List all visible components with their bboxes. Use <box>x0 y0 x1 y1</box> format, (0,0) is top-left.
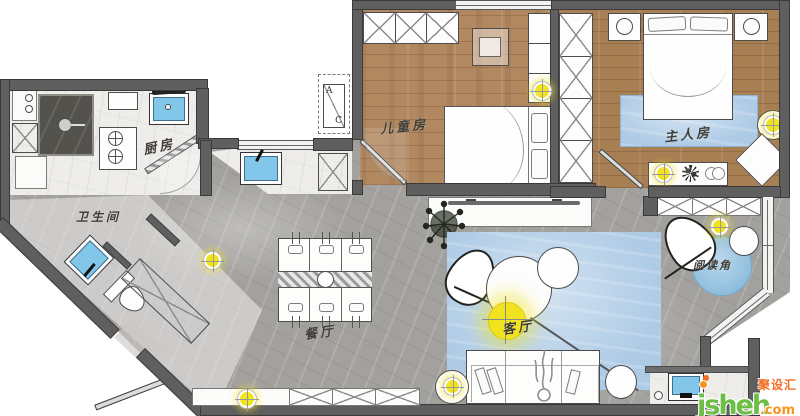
basin-icon <box>25 105 33 113</box>
chair-mark <box>292 316 293 328</box>
chair-mark <box>329 232 330 244</box>
wall <box>550 186 606 198</box>
wall <box>352 0 363 140</box>
chair-mark <box>352 232 353 244</box>
room-label-reading: 阅读角 <box>693 257 732 273</box>
plate-icon <box>288 245 303 254</box>
chair-mark <box>292 232 293 244</box>
lamp-icon <box>616 18 633 35</box>
watermark-logo: 聚设汇 jsheh .com <box>689 380 797 414</box>
plate-icon <box>319 303 334 312</box>
shower-drain-icon <box>58 118 72 132</box>
person-figure <box>520 348 568 406</box>
chair-mark <box>299 316 300 328</box>
wall <box>352 0 458 10</box>
shower-handle <box>71 124 85 126</box>
ceiling-light <box>533 82 551 100</box>
wall <box>196 88 209 144</box>
corridor-sink <box>244 156 278 181</box>
kids-desk-chair <box>479 37 501 57</box>
utility-counter <box>12 90 37 121</box>
ac-label-a: A <box>326 86 333 96</box>
wall <box>551 0 781 10</box>
wall <box>779 0 790 198</box>
sofa-side-table-right <box>605 365 637 399</box>
dresser-dish-icon <box>712 167 725 180</box>
ceiling-light <box>711 218 728 235</box>
top-window <box>456 0 553 10</box>
kids-closet <box>363 12 459 44</box>
watermark-dot-icon <box>699 380 708 389</box>
wall <box>313 138 353 151</box>
tv-stand <box>552 199 562 201</box>
chair-mark <box>299 232 300 244</box>
window-bench <box>192 388 420 406</box>
plate-icon <box>288 303 303 312</box>
chair-mark <box>359 316 360 328</box>
reading-side-table <box>729 226 759 256</box>
reading-closet <box>657 197 761 216</box>
master-bed <box>643 13 733 120</box>
entry-door-leaf <box>94 376 171 410</box>
master-wardrobe <box>559 13 593 183</box>
basin-icon <box>25 94 33 102</box>
plant-icon <box>682 165 699 182</box>
wall <box>0 79 208 91</box>
floor-plan: A C <box>0 0 800 416</box>
plate-icon <box>349 303 364 312</box>
kids-bed <box>444 106 552 185</box>
burner-icon <box>108 131 123 146</box>
ceiling-light <box>204 252 221 269</box>
bay-window-line <box>767 200 768 290</box>
room-label-bathroom: 卫生间 <box>76 208 121 225</box>
ceiling-light <box>238 390 256 408</box>
wall <box>550 9 559 187</box>
wall <box>200 140 212 196</box>
watermark-brand: jsheh <box>697 390 769 416</box>
ac-unit: A C <box>323 84 345 128</box>
utility-cabinet <box>15 156 47 189</box>
burner-icon <box>108 149 123 164</box>
balcony-divider <box>645 366 749 373</box>
wall <box>352 180 363 195</box>
chair-mark <box>359 232 360 244</box>
washer-cabinet <box>12 123 38 153</box>
chair-mark <box>352 316 353 328</box>
balcony-drain-icon <box>654 391 663 400</box>
faucet-icon <box>165 104 171 110</box>
bay-window-vertical <box>762 197 774 293</box>
wall <box>0 79 10 229</box>
chair-mark <box>322 232 323 244</box>
watermark-suffix: .com <box>760 403 795 416</box>
kitchen-window-box <box>108 92 138 110</box>
ac-label-c: C <box>335 116 342 126</box>
corridor-cabinet <box>318 153 348 191</box>
reading-closet-endwall <box>643 196 658 216</box>
plate-icon <box>349 245 364 254</box>
corridor-window <box>237 140 315 150</box>
lamp-icon <box>743 18 760 35</box>
coffee-table-small <box>537 247 579 289</box>
plate-icon <box>319 245 334 254</box>
ceiling-light <box>444 378 461 395</box>
ceiling-light <box>655 165 672 182</box>
